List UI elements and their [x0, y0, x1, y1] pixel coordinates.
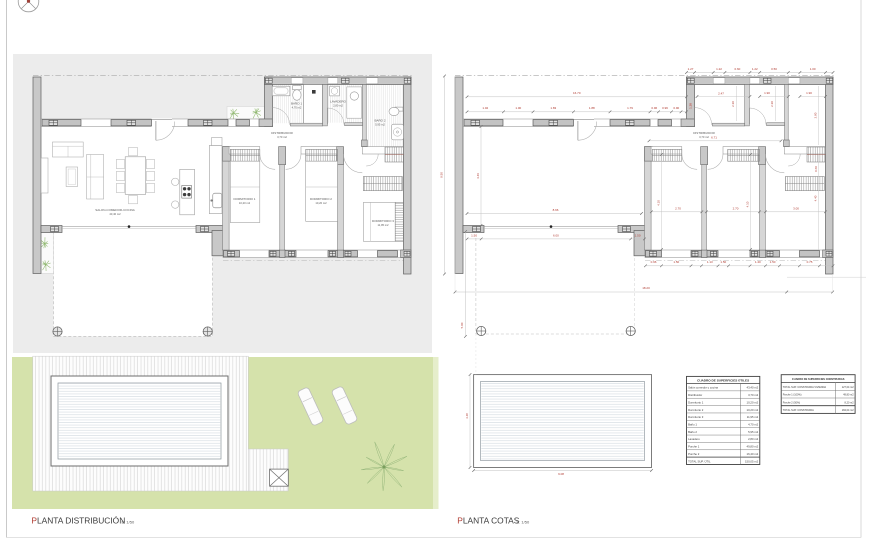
svg-text:1.83: 1.83 — [550, 106, 556, 110]
svg-text:5,95 m2: 5,95 m2 — [748, 430, 759, 434]
svg-text:16,40 m2: 16,40 m2 — [747, 452, 759, 456]
svg-text:DISTRIBUIDOR: DISTRIBUIDOR — [271, 131, 293, 135]
svg-text:BAÑO 2: BAÑO 2 — [374, 118, 385, 123]
svg-text:1.88: 1.88 — [589, 106, 595, 110]
svg-text:127,04 m2: 127,04 m2 — [842, 386, 854, 389]
svg-text:1.50: 1.50 — [635, 233, 641, 237]
svg-text:CUADRO DE SUPERFICIES CONSTRUI: CUADRO DE SUPERFICIES CONSTRUIDAS — [792, 377, 845, 381]
svg-text:0.75: 0.75 — [807, 260, 813, 264]
svg-text:0.96: 0.96 — [651, 106, 657, 110]
svg-text:1.22: 1.22 — [752, 67, 758, 71]
svg-text:4.40: 4.40 — [814, 195, 818, 201]
svg-text:Porche 2 (50%): Porche 2 (50%) — [783, 401, 801, 404]
svg-text:DORMITORIO 2: DORMITORIO 2 — [310, 197, 332, 201]
svg-text:SALON-COMEDOR-COCINA: SALON-COMEDOR-COCINA — [95, 208, 135, 212]
svg-text:4.10: 4.10 — [657, 200, 661, 206]
svg-text:0.60: 0.60 — [814, 166, 818, 172]
svg-text:2,80 m2: 2,80 m2 — [333, 103, 343, 107]
svg-text:2.80: 2.80 — [814, 112, 818, 118]
svg-text:TOTAL SUP. ÚTIL: TOTAL SUP. ÚTIL — [688, 458, 711, 463]
svg-text:2,80 m2: 2,80 m2 — [748, 437, 759, 441]
svg-text:2.70: 2.70 — [675, 206, 681, 210]
svg-text:1.90: 1.90 — [764, 91, 770, 95]
svg-text:2.30: 2.30 — [770, 101, 774, 107]
svg-text:PLANTA COTAS: PLANTA COTAS — [457, 516, 519, 526]
svg-text:1.50: 1.50 — [673, 260, 679, 264]
svg-text:Salón comedor y cocina: Salón comedor y cocina — [688, 386, 718, 390]
svg-text:1.28: 1.28 — [689, 103, 693, 109]
svg-text:Porche 1 (100%): Porche 1 (100%) — [783, 394, 802, 397]
svg-text:43,40 m2: 43,40 m2 — [109, 212, 121, 216]
svg-text:10,20 m2: 10,20 m2 — [239, 201, 251, 205]
svg-text:16.70: 16.70 — [573, 91, 581, 95]
svg-text:Dormitorio 1: Dormitorio 1 — [688, 400, 704, 404]
svg-text:E: 1/50: E: 1/50 — [517, 520, 530, 525]
svg-text:TOTAL SUP. CONSTRUIDA VIVIENDA: TOTAL SUP. CONSTRUIDA VIVIENDA — [783, 386, 827, 389]
svg-text:10,20 m2: 10,20 m2 — [747, 400, 759, 404]
svg-text:3,70 m2: 3,70 m2 — [748, 393, 759, 397]
svg-text:E: 1/50: E: 1/50 — [122, 520, 135, 525]
svg-text:4.46: 4.46 — [476, 173, 480, 179]
svg-text:184,04 m2: 184,04 m2 — [842, 409, 854, 412]
svg-text:Dormitorio 2: Dormitorio 2 — [688, 408, 704, 412]
svg-text:1.00: 1.00 — [810, 67, 816, 71]
svg-text:BAÑO 1: BAÑO 1 — [291, 101, 302, 106]
svg-text:49,80 m2: 49,80 m2 — [843, 394, 854, 397]
svg-text:10,20 m2: 10,20 m2 — [315, 201, 327, 205]
svg-text:0.50: 0.50 — [771, 67, 777, 71]
svg-text:1.50: 1.50 — [720, 260, 726, 264]
svg-text:1.22: 1.22 — [716, 67, 722, 71]
svg-text:TOTAL SUP. CONSTRUIDA: TOTAL SUP. CONSTRUIDA — [783, 409, 814, 412]
svg-text:3,70 m2: 3,70 m2 — [699, 135, 709, 139]
svg-text:8,20 m2: 8,20 m2 — [845, 401, 855, 404]
svg-text:9.50: 9.50 — [440, 172, 444, 178]
svg-text:1.13: 1.13 — [707, 260, 713, 264]
svg-text:1.90: 1.90 — [806, 91, 812, 95]
svg-text:150,05 m2: 150,05 m2 — [745, 459, 759, 463]
svg-text:11,95 m2: 11,95 m2 — [747, 415, 759, 419]
svg-text:2.70: 2.70 — [733, 206, 739, 210]
svg-text:1.02: 1.02 — [482, 106, 488, 110]
svg-text:Porche 1: Porche 1 — [688, 445, 700, 449]
svg-text:DORMITORIO 3: DORMITORIO 3 — [372, 219, 394, 223]
svg-text:6.00: 6.00 — [553, 233, 559, 237]
svg-text:11,95 m2: 11,95 m2 — [377, 223, 389, 227]
svg-text:Distribuidor: Distribuidor — [688, 393, 702, 397]
svg-text:0.90: 0.90 — [673, 106, 679, 110]
svg-text:LAVADERO: LAVADERO — [330, 100, 347, 104]
svg-text:6.71: 6.71 — [711, 135, 717, 139]
svg-text:4.48: 4.48 — [465, 413, 469, 419]
svg-text:43,40 m2: 43,40 m2 — [747, 386, 759, 390]
svg-text:4.10: 4.10 — [746, 201, 750, 207]
svg-text:10,20 m2: 10,20 m2 — [747, 408, 759, 412]
svg-text:1.27: 1.27 — [688, 67, 694, 71]
svg-text:CUADRO DE SUPERFICIES ÚTILES: CUADRO DE SUPERFICIES ÚTILES — [697, 377, 749, 382]
svg-text:9.08: 9.08 — [558, 472, 564, 476]
svg-text:Baño 1: Baño 1 — [688, 422, 697, 426]
svg-text:4,70 m2: 4,70 m2 — [748, 422, 759, 426]
svg-text:0.96: 0.96 — [662, 106, 668, 110]
svg-text:1.00: 1.00 — [515, 106, 521, 110]
svg-text:2.47: 2.47 — [718, 91, 724, 95]
svg-text:1.50: 1.50 — [770, 260, 776, 264]
svg-text:3.00: 3.00 — [793, 206, 799, 210]
svg-text:2.30: 2.30 — [731, 101, 735, 107]
svg-text:8.66: 8.66 — [553, 208, 559, 212]
svg-text:PLANTA DISTRIBUCIÓN: PLANTA DISTRIBUCIÓN — [31, 516, 125, 526]
svg-text:DORMITORIO 1: DORMITORIO 1 — [234, 197, 256, 201]
svg-text:4,70 m2: 4,70 m2 — [292, 105, 302, 109]
svg-text:1.79: 1.79 — [627, 106, 633, 110]
svg-text:0.60: 0.60 — [734, 67, 740, 71]
svg-text:18.20: 18.20 — [642, 286, 650, 290]
svg-text:0.96: 0.96 — [651, 260, 657, 264]
svg-text:Porche 2: Porche 2 — [688, 452, 700, 456]
svg-text:49,80 m2: 49,80 m2 — [747, 445, 759, 449]
svg-text:1.40: 1.40 — [755, 260, 761, 264]
svg-text:1.50: 1.50 — [471, 233, 477, 237]
svg-text:5,95 m2: 5,95 m2 — [375, 122, 385, 126]
svg-text:Baño 2: Baño 2 — [688, 430, 697, 434]
svg-text:5.00: 5.00 — [460, 322, 464, 328]
svg-text:Lavadero: Lavadero — [688, 437, 700, 441]
svg-text:Dormitorio 3: Dormitorio 3 — [688, 415, 704, 419]
svg-text:3,70 m2: 3,70 m2 — [277, 135, 287, 139]
